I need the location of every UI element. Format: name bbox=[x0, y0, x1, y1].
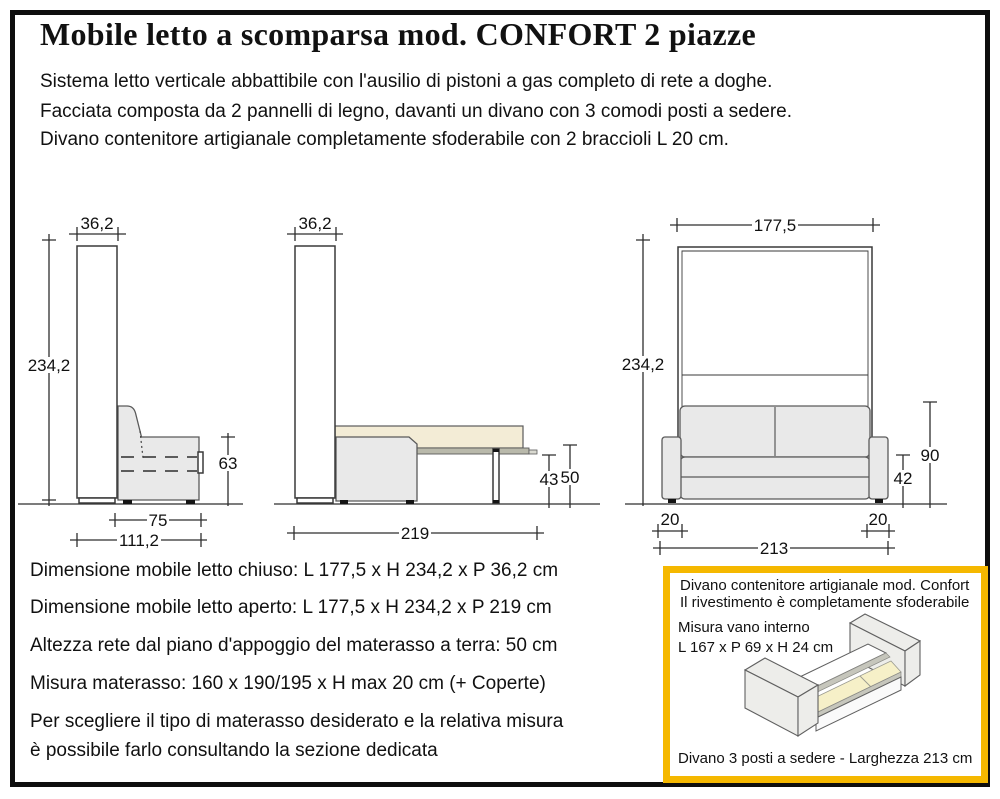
sofa-foot bbox=[668, 499, 676, 503]
dimension-seat-height: 42 bbox=[892, 455, 914, 508]
open-panel bbox=[295, 246, 335, 498]
dimension-front-width: 177,5 bbox=[670, 216, 880, 235]
sofa-foot bbox=[406, 500, 414, 504]
sofa-foot bbox=[875, 499, 883, 503]
dim-label-open-depth: 36,2 bbox=[298, 214, 331, 233]
open-bed-diagram: 36,2 43 50 219 bbox=[274, 214, 600, 543]
dim-label-armrest-right: 20 bbox=[869, 510, 888, 529]
dim-label-closed-total-depth: 111,2 bbox=[119, 531, 159, 550]
dim-label-bed-height: 50 bbox=[561, 468, 580, 487]
dim-label-sofa-depth: 75 bbox=[149, 511, 168, 530]
sofa-seat-base bbox=[680, 457, 870, 499]
dim-label-sofa-width: 213 bbox=[760, 539, 788, 558]
isometric-sofa-container bbox=[745, 614, 920, 736]
bed-rail-end bbox=[529, 450, 537, 454]
dimension-open-total-depth: 219 bbox=[287, 524, 544, 543]
panel-base bbox=[79, 498, 115, 503]
dimension-sofa-depth: 75 bbox=[109, 511, 207, 530]
dimension-armrest-right: 20 bbox=[861, 510, 895, 538]
dim-label-front-height: 234,2 bbox=[622, 355, 665, 374]
bed-leg-pin bbox=[493, 449, 499, 452]
panel-base bbox=[297, 498, 333, 503]
dim-label-closed-depth: 36,2 bbox=[80, 214, 113, 233]
dimension-sofa-height: 63 bbox=[218, 433, 239, 506]
sofa-side-profile bbox=[118, 406, 199, 500]
closed-panel bbox=[77, 246, 117, 498]
sofa-foot bbox=[340, 500, 348, 504]
dim-label-sofa-height: 63 bbox=[219, 454, 238, 473]
dimension-sofa-width: 213 bbox=[653, 539, 895, 558]
sofa-side-bracket bbox=[198, 452, 203, 473]
dim-label-closed-height: 234,2 bbox=[28, 356, 71, 375]
front-view-diagram: 177,5 234,2 90 42 20 bbox=[619, 216, 947, 558]
dimension-frame-height: 43 bbox=[539, 455, 559, 508]
dimension-open-depth: 36,2 bbox=[287, 214, 343, 241]
bed-leg-foot bbox=[493, 500, 499, 503]
dimension-bed-height: 50 bbox=[560, 445, 580, 508]
dim-label-frame-height: 43 bbox=[540, 470, 559, 489]
dimension-closed-total-depth: 111,2 bbox=[70, 531, 207, 550]
dimension-backrest-height: 90 bbox=[919, 402, 941, 508]
dim-label-front-width: 177,5 bbox=[754, 216, 797, 235]
bed-leg bbox=[493, 449, 499, 503]
dim-label-open-total-depth: 219 bbox=[401, 524, 429, 543]
dimension-closed-height: 234,2 bbox=[25, 234, 73, 506]
dimension-armrest-left: 20 bbox=[652, 510, 688, 538]
technical-drawings-layer: 36,2 234,2 63 75 bbox=[0, 0, 1000, 799]
dim-label-backrest-height: 90 bbox=[921, 446, 940, 465]
spec-sheet: Mobile letto a scomparsa mod. CONFORT 2 … bbox=[0, 0, 1000, 799]
armrest-left bbox=[662, 437, 681, 499]
dimension-closed-depth: 36,2 bbox=[69, 214, 126, 241]
dim-label-seat-height: 42 bbox=[894, 469, 913, 488]
armrest-right bbox=[869, 437, 888, 499]
dimension-front-height: 234,2 bbox=[619, 234, 667, 506]
sofa-foot bbox=[123, 500, 132, 504]
sofa-base-box bbox=[336, 437, 417, 501]
dim-label-armrest-left: 20 bbox=[661, 510, 680, 529]
closed-bed-diagram: 36,2 234,2 63 75 bbox=[18, 214, 243, 550]
sofa-foot bbox=[186, 500, 195, 504]
